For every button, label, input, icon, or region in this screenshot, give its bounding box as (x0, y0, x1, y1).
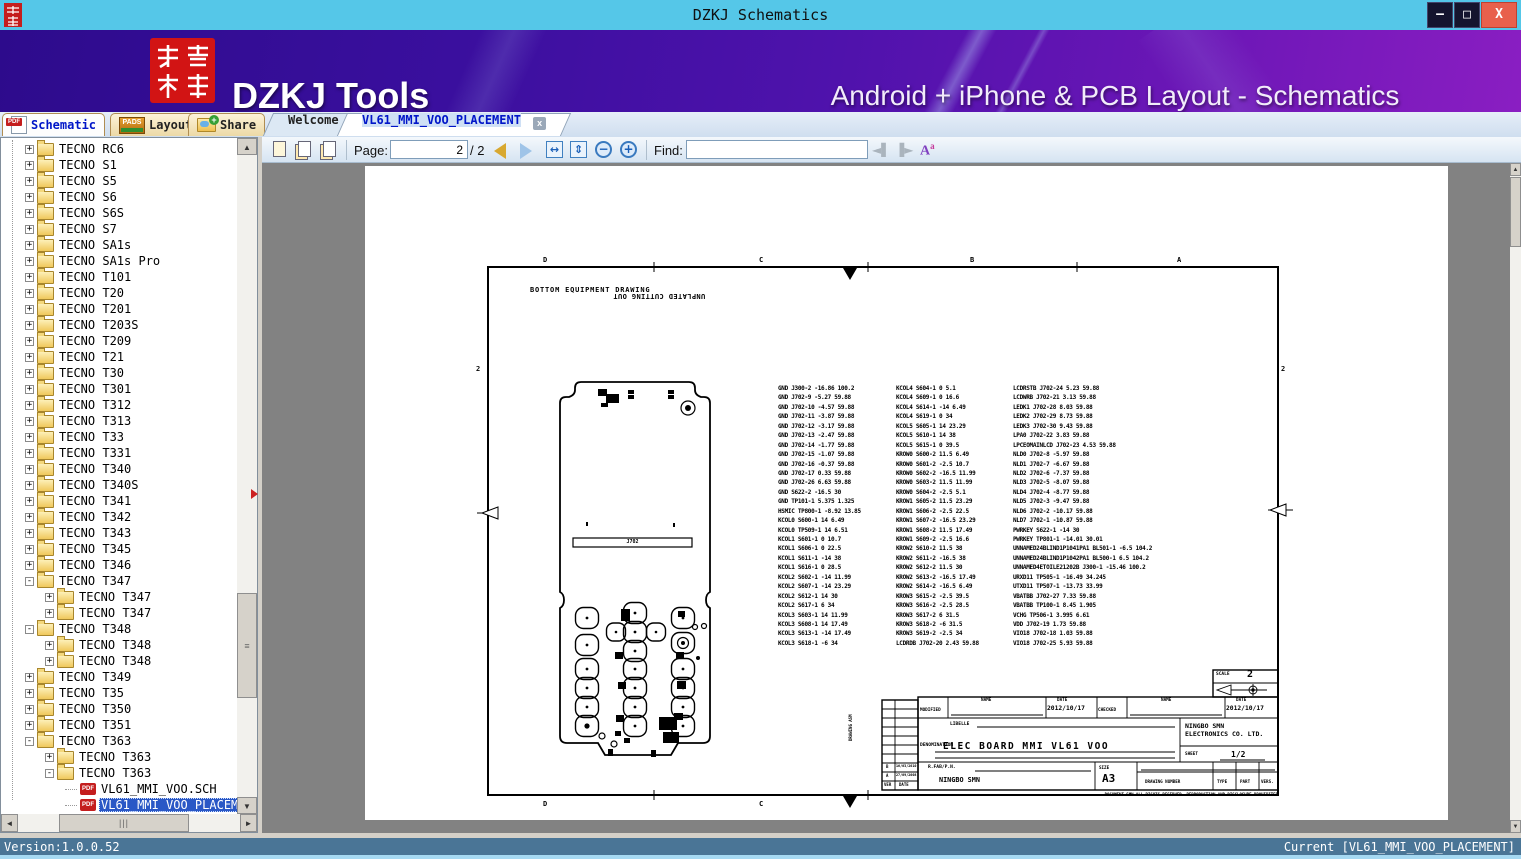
placement-text-line: KCOL5 S615-1 0 39.5 (896, 442, 979, 451)
placement-text-line: LCDRSTB J702-24 5.23 59.88 (1013, 385, 1152, 394)
placement-column-1: GND J300-2 -16.86 100.2GND J702-9 -5.27 … (778, 385, 861, 649)
expand-icon[interactable]: + (25, 721, 34, 730)
tree-item-label: TECNO S5 (57, 174, 119, 188)
tree-item-tecno-t313[interactable]: +TECNO T313 (1, 413, 238, 429)
expand-icon[interactable]: + (25, 353, 34, 362)
tree-item-vl61-mmi-voo-sch[interactable]: VL61_MMI_VOO.SCH (1, 781, 238, 797)
scroll-up-button[interactable]: ▲ (237, 138, 257, 155)
placement-text-line: VIO18 J702-25 5.93 59.88 (1013, 640, 1152, 649)
rev-date: 27/09/2008 (896, 773, 916, 777)
pads-icon: PADS (119, 117, 145, 134)
tree-item-tecno-t301[interactable]: +TECNO T301 (1, 381, 238, 397)
size-label: SIZE (1099, 765, 1109, 770)
tree-item-tecno-sa1s[interactable]: +TECNO SA1s (1, 237, 238, 253)
tree-item-tecno-t348[interactable]: +TECNO T348 (1, 637, 238, 653)
folder-icon (37, 239, 54, 252)
folder-icon (57, 767, 74, 780)
tree-item-tecno-t343[interactable]: +TECNO T343 (1, 525, 238, 541)
placement-text-line: KCOL1 S616-1 0 28.5 (778, 564, 861, 573)
tree-item-label: TECNO T363 (57, 734, 133, 748)
pdf-icon (80, 799, 96, 811)
tree-item-label: TECNO T101 (57, 270, 133, 284)
folder-icon (37, 383, 54, 396)
tree-item-tecno-t21[interactable]: +TECNO T21 (1, 349, 238, 365)
expand-icon[interactable]: + (25, 673, 34, 682)
previous-view-icon[interactable] (295, 141, 312, 158)
close-button[interactable]: X (1481, 2, 1517, 28)
collapse-icon[interactable]: - (25, 625, 34, 634)
folder-icon (37, 511, 54, 524)
expand-icon[interactable]: + (25, 305, 34, 314)
tree-item-tecno-t349[interactable]: +TECNO T349 (1, 669, 238, 685)
placement-text-line: UNNAMED24BLIND1P1041PA1 BL501-1 -6.5 104… (1013, 545, 1152, 554)
placement-text-line: NLD3 J702-5 -8.07 59.88 (1013, 479, 1152, 488)
pdf-icon (80, 783, 96, 795)
tree-item-tecno-s7[interactable]: +TECNO S7 (1, 221, 238, 237)
expand-icon[interactable]: + (25, 289, 34, 298)
expand-icon[interactable]: + (45, 609, 54, 618)
tree-item-tecno-t312[interactable]: +TECNO T312 (1, 397, 238, 413)
placement-text-line: UNNAMED24BLIND1P1042PA1 BL500-1 6.5 104.… (1013, 555, 1152, 564)
placement-text-line: GND J702-11 -3.87 59.88 (778, 413, 861, 422)
folder-icon (37, 463, 54, 476)
ver-label: VER (884, 782, 891, 787)
expand-icon[interactable]: + (25, 449, 34, 458)
placement-text-line: GND J702-10 -4.57 59.88 (778, 404, 861, 413)
placement-text-line: GND J702-14 -1.77 59.88 (778, 442, 861, 451)
placement-text-line: KCOL3 S603-1 14 11.99 (778, 612, 861, 621)
scroll-right-button[interactable]: ► (240, 814, 257, 832)
find-previous-icon[interactable]: ◄▌ (872, 143, 890, 157)
expand-icon[interactable]: + (25, 513, 34, 522)
date-value: 2012/10/17 (1047, 705, 1085, 712)
placement-text-line: HSMIC TP800-1 -8.92 13.85 (778, 508, 861, 517)
tree-item-label: TECNO T340S (57, 478, 140, 492)
tab-bar: PDF Schematic PADS Layout + Share Welcom… (0, 112, 1521, 138)
tree-item-label: TECNO T21 (57, 350, 126, 364)
tab-label: Share (220, 118, 256, 132)
expand-icon[interactable]: + (25, 545, 34, 554)
placement-text-line: NLD0 J702-8 -5.97 59.88 (1013, 451, 1152, 460)
pdf-icon: PDF (11, 116, 27, 134)
tree-item-tecno-t347[interactable]: -TECNO T347 (1, 573, 238, 589)
expand-icon[interactable]: + (45, 641, 54, 650)
placement-text-line: NLD6 J702-2 -10.17 59.88 (1013, 508, 1152, 517)
fit-width-icon[interactable]: ↔ (546, 141, 563, 158)
tree-item-tecno-t363[interactable]: -TECNO T363 (1, 765, 238, 781)
tab-schematic[interactable]: PDF Schematic (2, 113, 105, 136)
folder-icon (37, 735, 54, 748)
tree-item-tecno-s1[interactable]: +TECNO S1 (1, 157, 238, 173)
folder-icon (37, 287, 54, 300)
tree-connector (65, 805, 77, 806)
tree-item-label: TECNO T301 (57, 382, 133, 396)
banner-tagline: Android + iPhone & PCB Layout - Schemati… (795, 80, 1435, 112)
expand-icon[interactable]: + (25, 161, 34, 170)
tree-item-tecno-t345[interactable]: +TECNO T345 (1, 541, 238, 557)
placement-text-line: GND TP101-1 5.375 1.325 (778, 498, 861, 507)
tree-item-tecno-t20[interactable]: +TECNO T20 (1, 285, 238, 301)
placement-text-line: NLD7 J702-1 -10.87 59.88 (1013, 517, 1152, 526)
placement-text-line: KROW3 S619-2 -2.5 34 (896, 630, 979, 639)
placement-text-line: GND J702-9 -5.27 59.88 (778, 394, 861, 403)
date-label: DATE (1057, 698, 1067, 703)
scale-value: 2 (1247, 669, 1253, 680)
expand-icon[interactable]: + (25, 689, 34, 698)
folder-icon (37, 159, 54, 172)
scroll-left-button[interactable]: ◄ (1, 814, 18, 832)
date-col-label: DATE (899, 782, 909, 787)
placement-text-line: KCOL3 S618-1 -6 34 (778, 640, 861, 649)
scroll-up-button[interactable]: ▲ (1510, 163, 1521, 176)
placement-text-line: KCOL4 S614-1 -14 6.49 (896, 404, 979, 413)
placement-text-line: GND J702-16 -0.37 59.88 (778, 461, 861, 470)
tab-close-icon[interactable]: x (533, 117, 546, 130)
tree-item-tecno-t203s[interactable]: +TECNO T203S (1, 317, 238, 333)
placement-text-line: KROW1 S606-2 -2.5 22.5 (896, 508, 979, 517)
tree-item-label: TECNO SA1s Pro (57, 254, 162, 268)
tree-item-label: TECNO T203S (57, 318, 140, 332)
folder-icon (37, 367, 54, 380)
page-number-input[interactable] (390, 140, 468, 159)
tree-item-tecno-rc6[interactable]: +TECNO RC6 (1, 141, 238, 157)
expand-icon[interactable]: + (25, 385, 34, 394)
folder-icon (57, 607, 74, 620)
placement-text-line: KCOL5 S610-1 14 38 (896, 432, 979, 441)
folder-icon (57, 591, 74, 604)
rev-letter: B (886, 764, 888, 769)
placement-text-line: NLD4 J702-4 -8.77 59.88 (1013, 489, 1152, 498)
expand-icon[interactable]: + (25, 529, 34, 538)
placement-text-line: KROW2 S613-2 -16.5 17.49 (896, 574, 979, 583)
placement-text-line: KCOL1 S611-1 -14 38 (778, 555, 861, 564)
folder-icon (37, 175, 54, 188)
tree-item-label: TECNO T201 (57, 302, 133, 316)
tree-connector (65, 789, 77, 790)
tree-item-label: TECNO T348 (57, 622, 133, 636)
expand-icon[interactable]: + (25, 369, 34, 378)
folder-icon (37, 719, 54, 732)
frame-label: D (543, 800, 547, 808)
tree-item-label: TECNO T331 (57, 446, 133, 460)
scroll-thumb[interactable]: ≡ (237, 593, 257, 698)
folder-icon (37, 335, 54, 348)
folder-icon (37, 223, 54, 236)
folder-icon (57, 655, 74, 668)
expand-icon[interactable]: + (25, 417, 34, 426)
name-label: NAME (981, 698, 991, 703)
tree-item-label: TECNO T347 (77, 606, 153, 620)
expand-icon[interactable]: + (25, 433, 34, 442)
toolbar-separator (646, 140, 647, 160)
font-size-icon[interactable]: Aa (920, 141, 935, 160)
tree-guide-line (12, 140, 14, 800)
tree-item-tecno-t35[interactable]: +TECNO T35 (1, 685, 238, 701)
placement-text-line: GND J702-17 0.33 59.88 (778, 470, 861, 479)
placement-text-line: KCOL2 S612-1 14 30 (778, 593, 861, 602)
brand-title: DZKJ Tools (232, 75, 429, 112)
tree-item-vl61-mmi-voo-placement[interactable]: VL61_MMI_VOO_PLACEMENT (1, 797, 238, 813)
expand-icon[interactable]: + (25, 225, 34, 234)
page-label: Page: (354, 143, 388, 158)
document-viewer: BOTTOM EQUIPMENT DRAWING UNPLATED CUTTIN… (262, 163, 1510, 833)
tree-horizontal-scrollbar[interactable]: ◄ ||| ► (1, 814, 257, 832)
folder-icon (37, 143, 54, 156)
frame-label: 2 (1281, 365, 1285, 373)
tab-label: Welcome (288, 113, 339, 127)
tree-item-label: TECNO T30 (57, 366, 126, 380)
tree-item-label: TECNO T35 (57, 686, 126, 700)
tree-item-tecno-t350[interactable]: +TECNO T350 (1, 701, 238, 717)
expand-icon[interactable]: + (25, 209, 34, 218)
tree-item-label: TECNO T312 (57, 398, 133, 412)
tree-item-tecno-t351[interactable]: +TECNO T351 (1, 717, 238, 733)
expand-icon[interactable]: + (25, 465, 34, 474)
placement-text-line: KROW3 S618-2 -6 31.5 (896, 621, 979, 630)
tree-item-tecno-s6[interactable]: +TECNO S6 (1, 189, 238, 205)
window-title: DZKJ Schematics (0, 6, 1521, 24)
size-value: A3 (1102, 772, 1115, 785)
sheet-value: 1/2 (1231, 750, 1245, 759)
placement-text-line: GND J300-2 -16.86 100.2 (778, 385, 861, 394)
placement-text-line: VBATBB J702-27 7.33 59.88 (1013, 593, 1152, 602)
placement-text-line: LPCEOMAINLCD J702-23 4.53 59.88 (1013, 442, 1152, 451)
expand-icon[interactable]: + (25, 241, 34, 250)
tree-item-tecno-t209[interactable]: +TECNO T209 (1, 333, 238, 349)
next-view-icon[interactable] (320, 141, 337, 158)
placement-text-line: KCOL2 S617-1 6 34 (778, 602, 861, 611)
tree-item-label: TECNO T348 (77, 638, 153, 652)
tree-item-label: TECNO T341 (57, 494, 133, 508)
tree-item-label: TECNO SA1s (57, 238, 133, 252)
fit-page-icon[interactable]: ⇕ (570, 141, 587, 158)
tab-label: Schematic (31, 118, 96, 132)
splitter-arrow-icon[interactable] (251, 489, 258, 499)
placement-text-line: LEDK3 J702-30 9.43 59.88 (1013, 423, 1152, 432)
tree-item-label: TECNO T350 (57, 702, 133, 716)
placement-text-line: GND S622-2 -16.5 30 (778, 489, 861, 498)
scroll-down-button[interactable]: ▼ (1510, 820, 1521, 833)
tree-item-label: TECNO S6S (57, 206, 126, 220)
placement-text-line: KROW0 S603-2 11.5 11.99 (896, 479, 979, 488)
tree-item-tecno-t340s[interactable]: +TECNO T340S (1, 477, 238, 493)
status-bar: Version:1.0.0.52 Current [VL61_MMI_VOO_P… (0, 838, 1521, 855)
schematic-tree-panel: +TECNO RC6+TECNO S1+TECNO S5+TECNO S6+TE… (0, 137, 258, 833)
rfab-label: R.FAB/P.N. (928, 765, 956, 770)
placement-text-line: KROW3 S615-2 -2.5 39.5 (896, 593, 979, 602)
tree-item-tecno-t347[interactable]: +TECNO T347 (1, 589, 238, 605)
expand-icon[interactable]: + (25, 481, 34, 490)
tree-list: +TECNO RC6+TECNO S1+TECNO S5+TECNO S6+TE… (1, 141, 238, 813)
tree-item-tecno-t201[interactable]: +TECNO T201 (1, 301, 238, 317)
tree-item-tecno-t340[interactable]: +TECNO T340 (1, 461, 238, 477)
maximize-button[interactable]: □ (1454, 2, 1480, 28)
drawing-number-label: DRAWING NUMBER (1145, 779, 1180, 784)
expand-icon[interactable]: + (45, 753, 54, 762)
placement-text-line: KCOL4 S619-1 0 34 (896, 413, 979, 422)
tree-item-label: VL61_MMI_VOO.SCH (99, 782, 219, 796)
tree-item-label: TECNO T348 (77, 654, 153, 668)
tree-item-label: TECNO T351 (57, 718, 133, 732)
frame-label: A (1177, 256, 1181, 264)
frame-label: B (970, 256, 974, 264)
find-input[interactable] (686, 140, 868, 159)
tree-item-label: TECNO T363 (77, 766, 153, 780)
tree-item-tecno-t346[interactable]: +TECNO T346 (1, 557, 238, 573)
tree-item-label: TECNO T345 (57, 542, 133, 556)
placement-text-line: KROW1 S609-2 -2.5 16.6 (896, 536, 979, 545)
folder-icon (37, 207, 54, 220)
expand-icon[interactable]: + (45, 593, 54, 602)
tree-item-tecno-t33[interactable]: +TECNO T33 (1, 429, 238, 445)
folder-icon (37, 703, 54, 716)
tree-item-tecno-t348[interactable]: -TECNO T348 (1, 621, 238, 637)
drawing-heading-flipped: UNPLATED CUTTING OUT (613, 292, 705, 300)
tree-item-label: TECNO T346 (57, 558, 133, 572)
expand-icon[interactable]: + (25, 177, 34, 186)
folder-icon (37, 447, 54, 460)
tree-item-tecno-t363[interactable]: +TECNO T363 (1, 749, 238, 765)
tree-item-label: TECNO T363 (77, 750, 153, 764)
tree-item-tecno-t347[interactable]: +TECNO T347 (1, 605, 238, 621)
rfab-value: NINGBO SMN (939, 776, 980, 784)
expand-icon[interactable]: + (25, 273, 34, 282)
placement-text-line: KROW1 S608-2 11.5 17.49 (896, 527, 979, 536)
folder-icon (37, 415, 54, 428)
expand-icon[interactable]: + (25, 257, 34, 266)
tree-item-label: TECNO T347 (77, 590, 153, 604)
expand-icon[interactable]: + (25, 321, 34, 330)
placement-text-line: KROW0 S600-2 11.5 6.49 (896, 451, 979, 460)
tree-item-tecno-s5[interactable]: +TECNO S5 (1, 173, 238, 189)
tree-item-label: TECNO T20 (57, 286, 126, 300)
scroll-thumb[interactable]: ||| (59, 814, 189, 832)
rev-date: 16/03/2010 (896, 764, 916, 768)
tab-label: Layout (149, 118, 192, 132)
zoom-in-icon[interactable]: + (620, 141, 637, 158)
tree-item-tecno-t341[interactable]: +TECNO T341 (1, 493, 238, 509)
zoom-out-icon[interactable]: − (595, 141, 612, 158)
placement-text-line: KROW3 S617-2 6 31.5 (896, 612, 979, 621)
placement-text-line: PWRKEY TP801-1 -14.01 30.01 (1013, 536, 1152, 545)
placement-text-line: KROW1 S605-2 11.5 23.29 (896, 498, 979, 507)
scale-label: SCALE (1216, 672, 1230, 677)
placement-text-line: KROW1 S607-2 -16.5 23.29 (896, 517, 979, 526)
placement-column-3: LCDRSTB J702-24 5.23 59.88LCDWRB J702-21… (1013, 385, 1152, 649)
folder-icon (57, 639, 74, 652)
expand-icon[interactable]: + (45, 657, 54, 666)
titleblock-footer: DOCUMENT SMN ALL RIGHTS RESERVED. REPROD… (925, 792, 1278, 797)
prev-page-icon[interactable] (494, 143, 506, 159)
tree-item-tecno-t363[interactable]: -TECNO T363 (1, 733, 238, 749)
placement-text-line: LCDRDB J702-20 2.43 59.88 (896, 640, 979, 649)
expand-icon[interactable]: + (25, 401, 34, 410)
placement-text-line: PWRKEY S622-1 -14 30 (1013, 527, 1152, 536)
scroll-thumb[interactable] (1510, 177, 1521, 247)
tree-item-label: TECNO RC6 (57, 142, 126, 156)
frame-label: C (759, 800, 763, 808)
placement-text-line: NLD2 J702-6 -7.37 59.88 (1013, 470, 1152, 479)
folder-icon (37, 399, 54, 412)
placement-text-line: KROW2 S612-2 11.5 30 (896, 564, 979, 573)
placement-text-line: KCOL3 S613-1 -14 17.49 (778, 630, 861, 639)
connector-label: J702 (573, 539, 692, 545)
find-next-icon[interactable]: ▐► (895, 143, 913, 157)
collapse-icon[interactable]: - (25, 737, 34, 746)
folder-icon (37, 543, 54, 556)
expand-icon[interactable]: + (25, 145, 34, 154)
toolbar-separator (346, 140, 347, 160)
collapse-icon[interactable]: - (45, 769, 54, 778)
tab-share[interactable]: + Share (188, 113, 265, 136)
tab-label: VL61_MMI_VOO_PLACEMENT (362, 113, 521, 127)
folder-icon (37, 527, 54, 540)
expand-icon[interactable]: + (25, 497, 34, 506)
tree-item-label: TECNO T347 (57, 574, 133, 588)
scroll-down-button[interactable]: ▼ (237, 797, 257, 814)
folder-icon (37, 623, 54, 636)
sheet-label: SHEET (1185, 752, 1198, 757)
placement-text-line: KCOL1 S606-1 0 22.5 (778, 545, 861, 554)
minimize-button[interactable]: – (1427, 2, 1453, 28)
expand-icon[interactable]: + (25, 705, 34, 714)
frame-label: C (759, 256, 763, 264)
company-name: ELECTRONICS CO. LTD. (1185, 730, 1263, 738)
placement-text-line: LCDWRB J702-21 3.13 59.88 (1013, 394, 1152, 403)
collapse-icon[interactable]: - (25, 577, 34, 586)
next-page-icon[interactable] (520, 143, 532, 159)
title-bar: DZKJ Schematics – □ X (0, 0, 1521, 30)
page-total: / 2 (470, 143, 484, 158)
expand-icon[interactable]: + (25, 193, 34, 202)
placement-text-line: NLD5 J702-3 -9.47 59.88 (1013, 498, 1152, 507)
folder-icon (37, 495, 54, 508)
date-label: DATE (1236, 698, 1246, 703)
placement-text-line: KCOL4 S609-1 0 16.6 (896, 394, 979, 403)
schematic-page: BOTTOM EQUIPMENT DRAWING UNPLATED CUTTIN… (365, 166, 1448, 820)
type-label: TYPE (1217, 779, 1227, 784)
document-vertical-scrollbar[interactable]: ▲ ▼ (1510, 163, 1521, 833)
expand-icon[interactable]: + (25, 337, 34, 346)
tree-vertical-scrollbar[interactable]: ▲ ≡ ▼ (237, 138, 257, 814)
name-label: NAME (1161, 698, 1171, 703)
current-document-text: Current [VL61_MMI_VOO_PLACEMENT] (1284, 840, 1515, 854)
tree-item-tecno-sa1s-pro[interactable]: +TECNO SA1s Pro (1, 253, 238, 269)
tree-item-label: TECNO T343 (57, 526, 133, 540)
page-view-icon[interactable] (270, 141, 287, 158)
frame-label: D (543, 256, 547, 264)
tab-vl61-mmi-voo-placement[interactable]: VL61_MMI_VOO_PLACEMENT x (342, 113, 566, 136)
version-text: Version:1.0.0.52 (4, 840, 120, 854)
tree-item-tecno-t331[interactable]: +TECNO T331 (1, 445, 238, 461)
rev-letter: A (886, 773, 888, 778)
tree-item-tecno-t101[interactable]: +TECNO T101 (1, 269, 238, 285)
placement-column-2: KCOL4 S604-1 0 5.1KCOL4 S609-1 0 16.6KCO… (896, 385, 979, 649)
folder-icon (37, 255, 54, 268)
checked-label: CHECKED (1098, 708, 1116, 713)
placement-text-line: LEDK1 J702-28 8.03 59.88 (1013, 404, 1152, 413)
tree-item-label: TECNO S1 (57, 158, 119, 172)
tree-item-tecno-t342[interactable]: +TECNO T342 (1, 509, 238, 525)
placement-text-line: KROW2 S614-2 -16.5 6.49 (896, 583, 979, 592)
placement-text-line: UTXD11 TP507-1 -13.73 33.99 (1013, 583, 1152, 592)
tree-item-tecno-s6s[interactable]: +TECNO S6S (1, 205, 238, 221)
find-label: Find: (654, 143, 683, 158)
placement-text-line: KROW0 S601-2 -2.5 10.7 (896, 461, 979, 470)
expand-icon[interactable]: + (25, 561, 34, 570)
tree-item-tecno-t348[interactable]: +TECNO T348 (1, 653, 238, 669)
tree-item-tecno-t30[interactable]: +TECNO T30 (1, 365, 238, 381)
